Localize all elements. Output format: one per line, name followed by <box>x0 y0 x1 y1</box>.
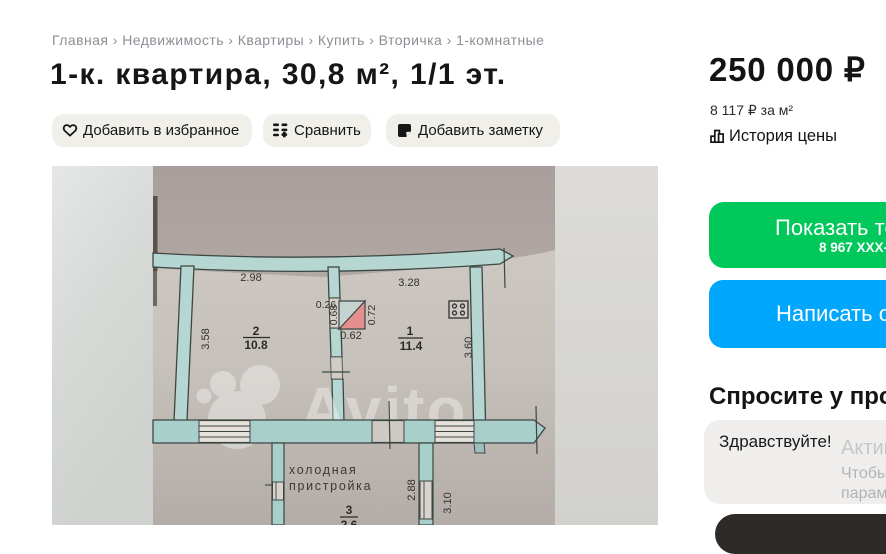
svg-text:2.6: 2.6 <box>341 518 358 525</box>
svg-text:пристройка: пристройка <box>289 479 372 493</box>
svg-text:11.4: 11.4 <box>400 339 423 353</box>
svg-text:3.60: 3.60 <box>463 337 475 358</box>
svg-text:3.58: 3.58 <box>200 328 212 349</box>
svg-text:3: 3 <box>346 503 353 517</box>
svg-text:2.98: 2.98 <box>240 272 261 284</box>
svg-text:0.72: 0.72 <box>366 305 378 326</box>
svg-text:3.10: 3.10 <box>442 492 454 513</box>
svg-text:10.8: 10.8 <box>244 338 268 352</box>
svg-text:1: 1 <box>407 324 414 338</box>
svg-text:0.62: 0.62 <box>340 330 361 342</box>
svg-text:3.28: 3.28 <box>398 277 419 289</box>
svg-text:холодная: холодная <box>289 463 357 477</box>
svg-text:2: 2 <box>253 324 260 338</box>
svg-text:0.68: 0.68 <box>328 305 340 326</box>
svg-text:2.88: 2.88 <box>406 479 418 500</box>
